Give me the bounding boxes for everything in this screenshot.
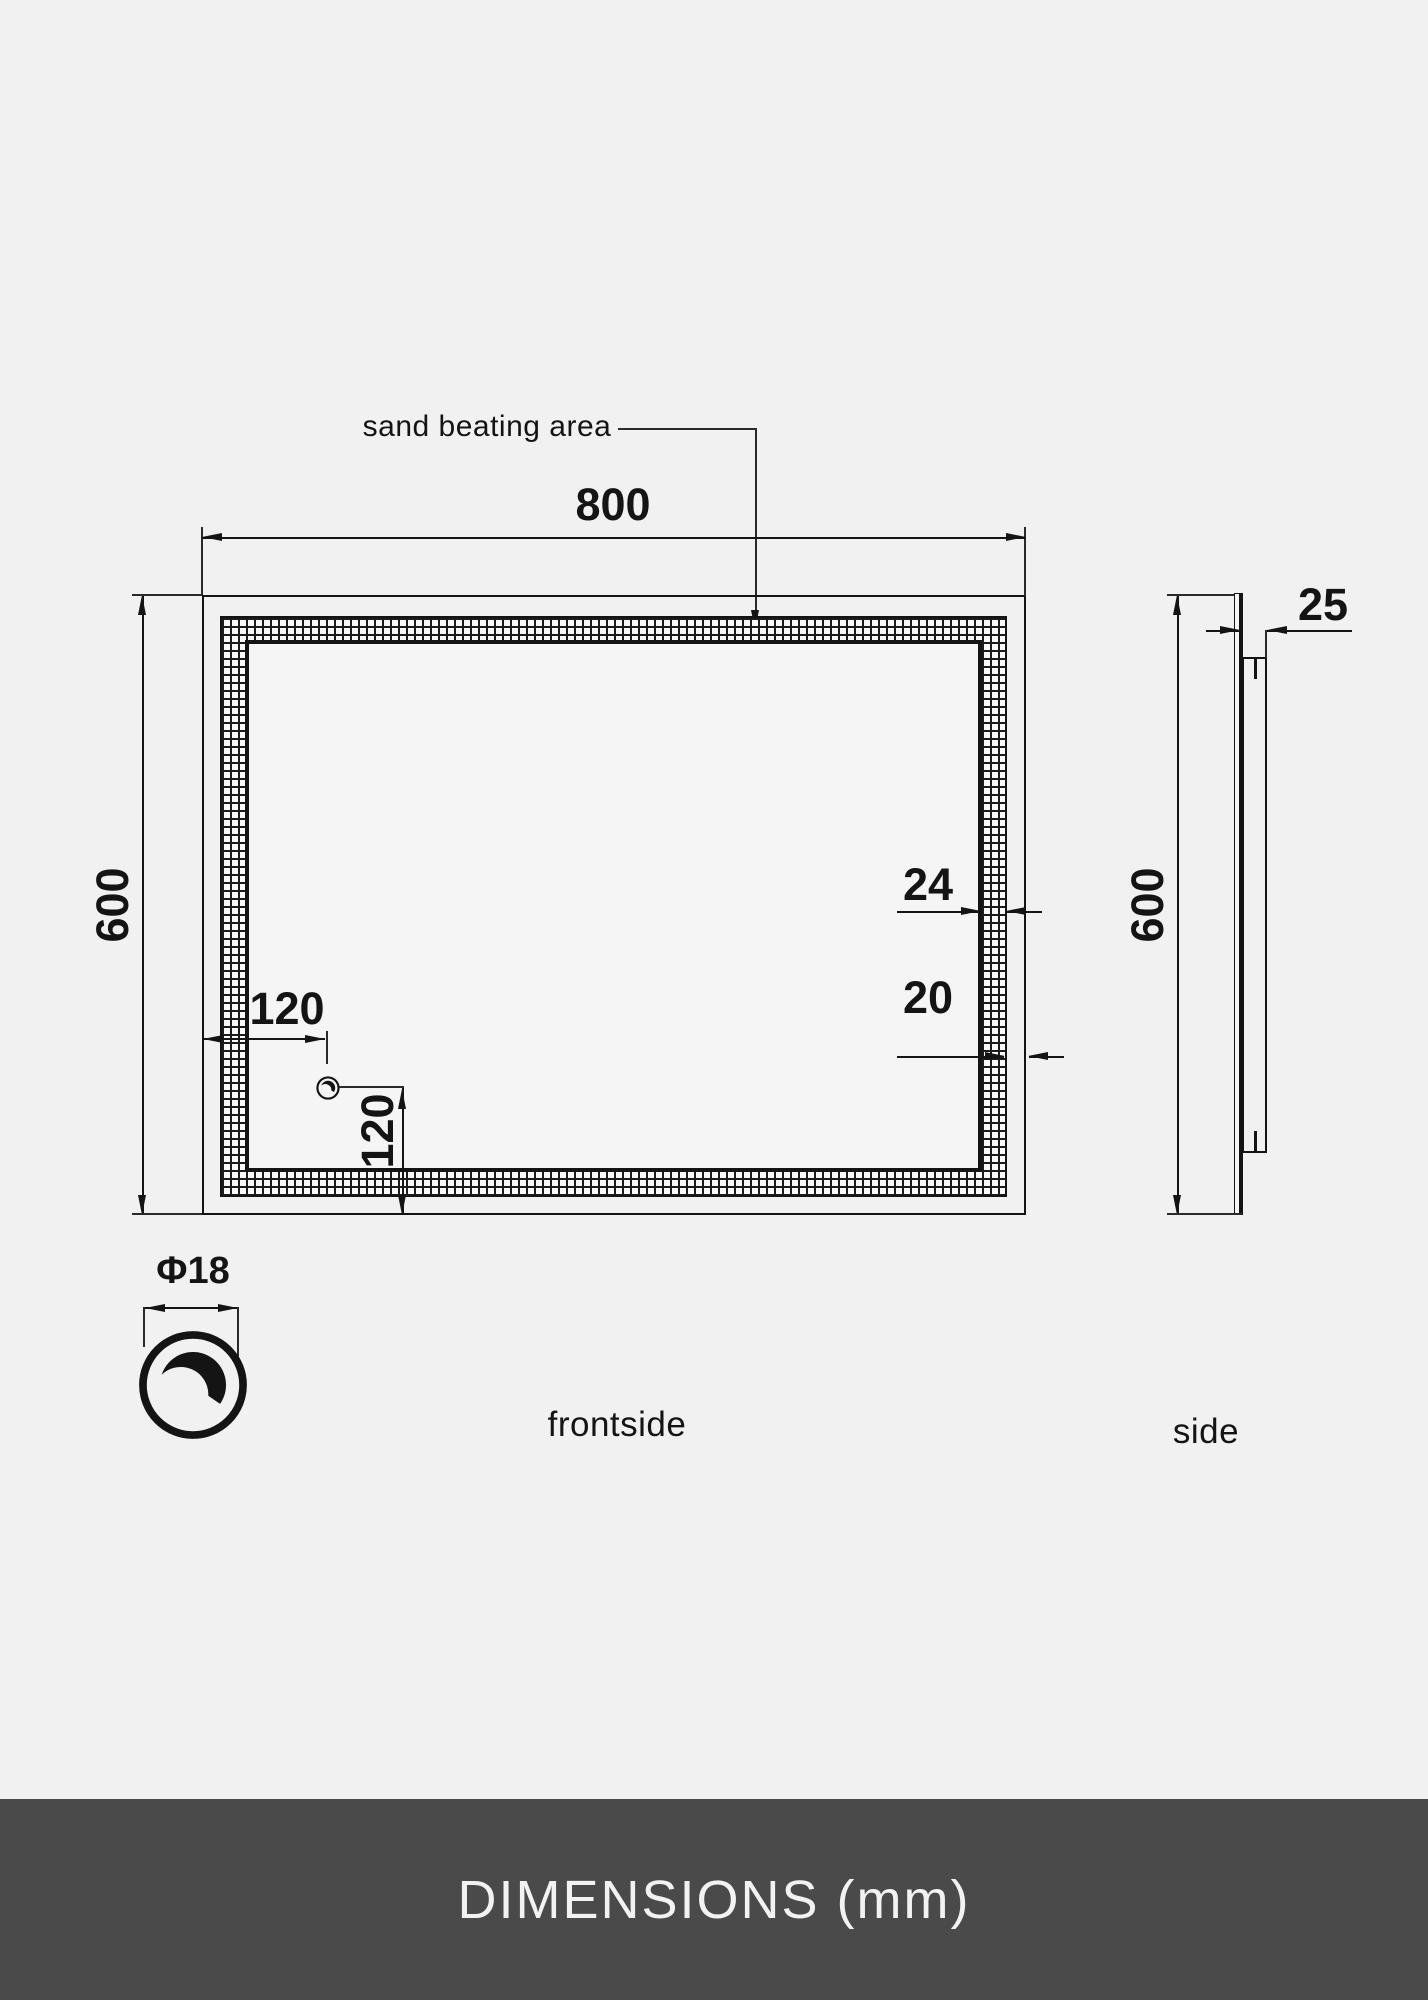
dim-width-line	[202, 537, 1026, 539]
dim-knob-diameter-arrow-right-icon	[218, 1304, 238, 1312]
dim-width-label: 800	[553, 482, 673, 527]
dim-knob-diameter-label: Φ18	[133, 1252, 253, 1290]
dim-height-front-ext-bottom	[132, 1213, 202, 1215]
dim-knob-offset-y-label: 120	[354, 1061, 400, 1201]
leader-line-horizontal	[618, 428, 757, 430]
technical-drawing: sand beating area 800 600 24 20 120 120	[0, 0, 1428, 2000]
dim-depth-label: 25	[1283, 582, 1363, 627]
dim-knob-offset-x-arrow-right-icon	[305, 1035, 325, 1043]
side-backbox-tick-bottom	[1254, 1131, 1257, 1152]
dim-knob-offset-x-arrow-left-icon	[203, 1035, 223, 1043]
dim-height-front-arrow-top-icon	[138, 595, 146, 615]
dim-width-arrow-right-icon	[1006, 533, 1026, 541]
dim-depth-arrow-left-icon	[1220, 626, 1240, 634]
footer-bar: DIMENSIONS (mm)	[0, 1799, 1428, 2000]
dim-height-side-line	[1177, 595, 1179, 1215]
dim-band-inset-arrow-left-icon	[985, 1052, 1005, 1060]
side-view-label: side	[1106, 1412, 1306, 1452]
front-view-label: frontside	[467, 1405, 767, 1445]
dim-band-inset-label: 20	[897, 975, 959, 1020]
dim-band-width-label: 24	[897, 862, 959, 907]
dim-height-side-ext-top	[1167, 594, 1234, 596]
leader-line-vertical	[755, 428, 757, 613]
dim-knob-offset-x-ext	[326, 1031, 328, 1064]
dial-knob-icon	[138, 1330, 248, 1440]
dim-height-side-arrow-top-icon	[1173, 595, 1181, 615]
footer-title: DIMENSIONS (mm)	[458, 1869, 971, 1931]
dim-width-arrow-left-icon	[202, 533, 222, 541]
dim-height-front-ext-top	[132, 594, 202, 596]
dim-height-side-label: 600	[1124, 835, 1170, 975]
dim-height-side-arrow-bottom-icon	[1173, 1195, 1181, 1215]
dim-depth-ext	[1265, 630, 1267, 658]
dim-knob-offset-x-label: 120	[227, 986, 347, 1031]
dim-depth-arrow-right-icon	[1267, 626, 1287, 634]
side-backbox-tick-top	[1254, 658, 1257, 679]
dim-band-width-arrow-right-icon	[1006, 907, 1026, 915]
side-backbox-outline	[1242, 657, 1267, 1153]
dim-band-width-arrow-left-icon	[961, 907, 981, 915]
dim-height-front-label: 600	[89, 835, 135, 975]
dim-knob-diameter-arrow-left-icon	[145, 1304, 165, 1312]
dim-height-side-ext-bottom	[1167, 1213, 1242, 1215]
dim-height-front-arrow-bottom-icon	[138, 1195, 146, 1215]
sand-beating-area-label: sand beating area	[337, 410, 637, 444]
dim-band-inset-arrow-right-icon	[1028, 1052, 1048, 1060]
sensor-knob-icon	[316, 1076, 340, 1100]
dim-height-front-line	[142, 595, 144, 1215]
